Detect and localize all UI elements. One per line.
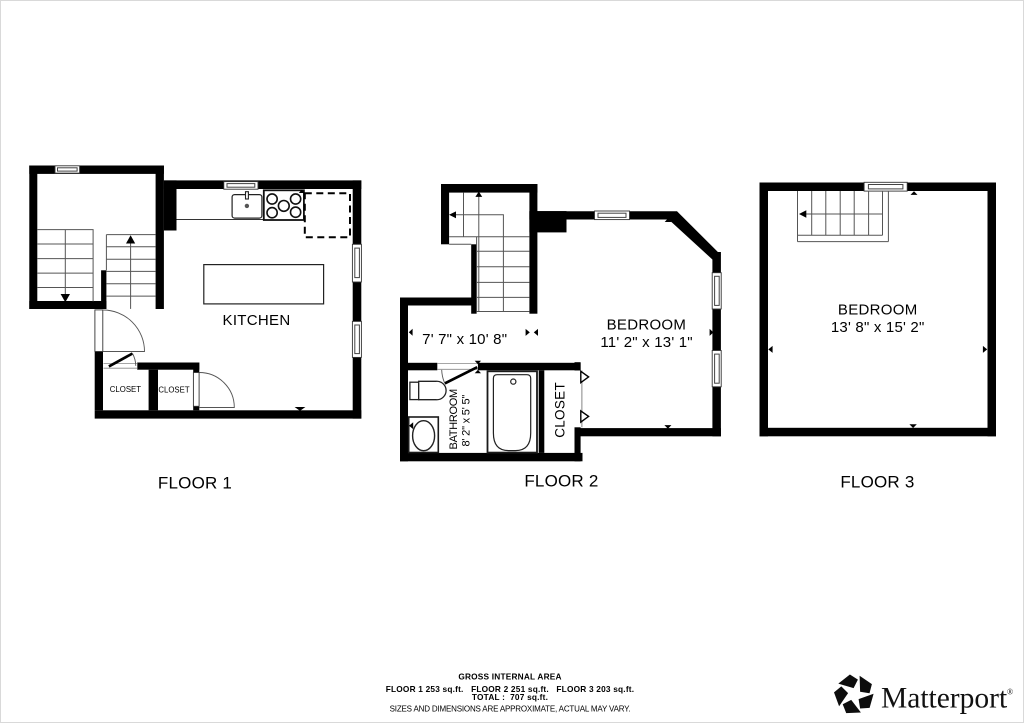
svg-text:13' 8" x 15' 2": 13' 8" x 15' 2" [831,319,925,336]
svg-text:Matterport: Matterport [881,683,1008,715]
svg-text:CLOSET: CLOSET [110,385,141,394]
svg-text:TOTAL : 707 sq.ft.: TOTAL : 707 sq.ft. [472,692,548,702]
svg-text:CLOSET: CLOSET [552,382,567,438]
svg-text:FLOOR 1: FLOOR 1 [158,473,232,492]
svg-text:CLOSET: CLOSET [158,385,189,394]
svg-text:KITCHEN: KITCHEN [223,312,291,329]
svg-text:7' 7" x 10' 8": 7' 7" x 10' 8" [422,331,507,348]
svg-text:GROSS INTERNAL AREA: GROSS INTERNAL AREA [458,672,561,682]
svg-text:BATHROOM: BATHROOM [448,389,460,449]
svg-text:11' 2" x 13' 1": 11' 2" x 13' 1" [600,334,693,351]
svg-text:®: ® [1007,688,1013,697]
svg-text:SIZES AND DIMENSIONS ARE APPRO: SIZES AND DIMENSIONS ARE APPROXIMATE, AC… [390,705,631,714]
svg-text:BEDROOM: BEDROOM [607,316,687,333]
svg-text:FLOOR 3: FLOOR 3 [840,473,914,492]
svg-text:8' 2" x 5' 5": 8' 2" x 5' 5" [461,395,473,447]
svg-text:BEDROOM: BEDROOM [838,301,918,318]
svg-text:FLOOR 2: FLOOR 2 [524,471,598,490]
